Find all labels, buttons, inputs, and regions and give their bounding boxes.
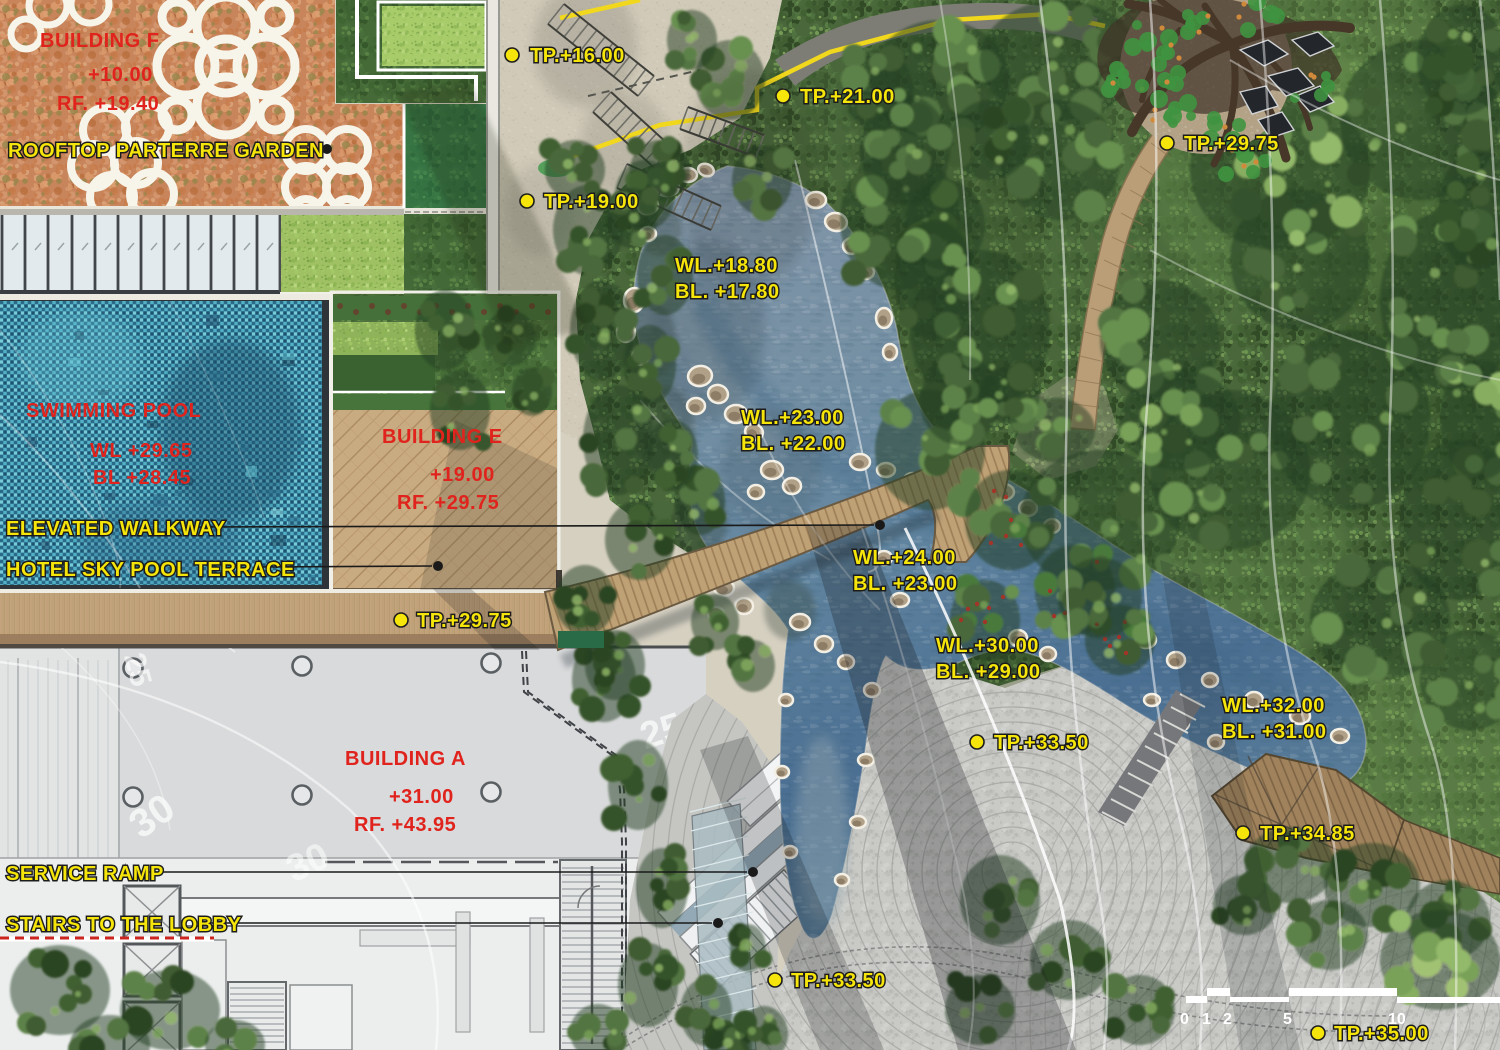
svg-text:+31.00: +31.00 [389,786,454,808]
svg-text:5: 5 [1283,1011,1292,1028]
svg-text:STAIRS TO THE LOBBY: STAIRS TO THE LOBBY [6,914,242,936]
svg-text:ELEVATED WALKWAY: ELEVATED WALKWAY [6,518,226,540]
svg-text:ROOFTOP PARTERRE GARDEN: ROOFTOP PARTERRE GARDEN [8,140,324,162]
svg-text:+19.00: +19.00 [430,464,495,486]
svg-text:WL.+24.00: WL.+24.00 [853,547,956,569]
svg-text:TP.+33.50: TP.+33.50 [791,970,886,992]
svg-text:10: 10 [1388,1011,1406,1028]
svg-text:BL. +31.00: BL. +31.00 [1222,721,1327,743]
svg-text:RF. +43.95: RF. +43.95 [354,814,456,836]
svg-text:RF. +19.40: RF. +19.40 [57,93,159,115]
svg-text:RF. +29.75: RF. +29.75 [397,492,499,514]
svg-text:TP.+21.00: TP.+21.00 [800,86,895,108]
svg-text:1: 1 [1202,1011,1211,1028]
svg-text:TP.+29.75: TP.+29.75 [1184,133,1279,155]
svg-text:WL.+30.00: WL.+30.00 [936,635,1039,657]
svg-text:BUILDING A: BUILDING A [345,748,466,770]
svg-text:BUILDING E: BUILDING E [382,426,503,448]
svg-text:BL. +29.00: BL. +29.00 [936,661,1041,683]
svg-text:TP.+33.50: TP.+33.50 [994,732,1089,754]
svg-text:BL. +22.00: BL. +22.00 [741,433,846,455]
svg-text:BUILDING F: BUILDING F [40,30,159,52]
svg-text:0: 0 [1180,1011,1189,1028]
svg-text:HOTEL SKY POOL TERRACE: HOTEL SKY POOL TERRACE [6,559,295,581]
svg-text:TP.+34.85: TP.+34.85 [1260,823,1355,845]
svg-text:BL +28.45: BL +28.45 [93,467,191,489]
svg-text:SWIMMING POOL: SWIMMING POOL [26,400,201,422]
svg-text:2: 2 [1223,1011,1232,1028]
svg-text:+10.00: +10.00 [88,64,153,86]
svg-text:TP.+19.00: TP.+19.00 [544,191,639,213]
svg-text:TP.+35.00: TP.+35.00 [1334,1023,1429,1045]
svg-text:TP.+16.00: TP.+16.00 [530,45,625,67]
svg-text:WL.+18.80: WL.+18.80 [675,255,778,277]
svg-text:BL. +17.80: BL. +17.80 [675,281,780,303]
svg-text:WL +29.65: WL +29.65 [90,440,193,462]
svg-text:TP.+29.75: TP.+29.75 [417,610,512,632]
svg-text:WL.+32.00: WL.+32.00 [1222,695,1325,717]
svg-text:BL. +23.00: BL. +23.00 [853,573,958,595]
svg-text:WL.+23.00: WL.+23.00 [741,407,844,429]
svg-text:SERVICE RAMP: SERVICE RAMP [6,863,164,885]
